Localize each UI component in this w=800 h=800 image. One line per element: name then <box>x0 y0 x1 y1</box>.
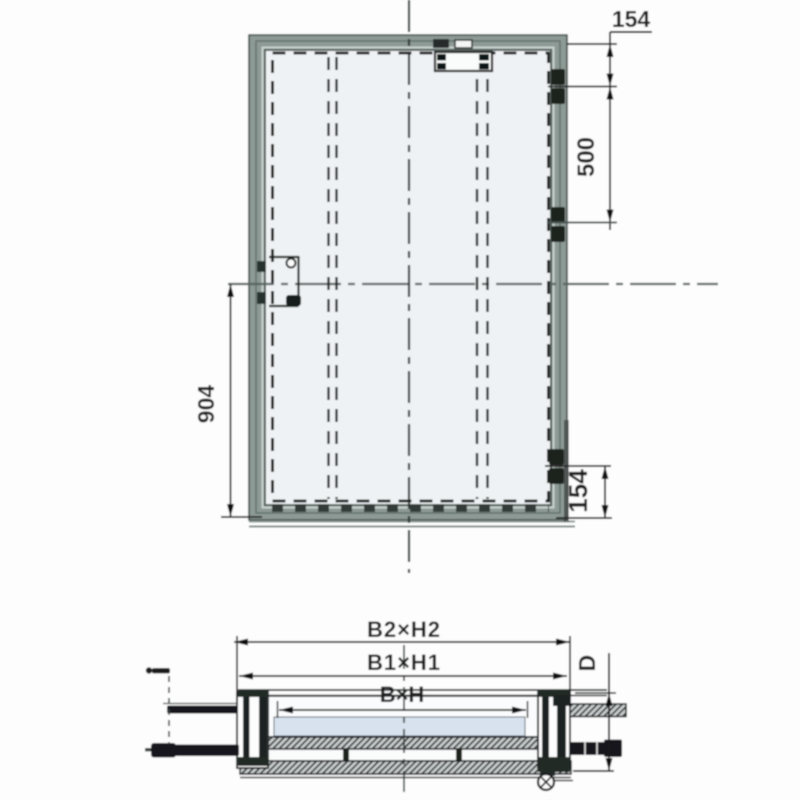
svg-text:154: 154 <box>612 6 651 32</box>
svg-text:B2×H2: B2×H2 <box>367 617 441 642</box>
svg-text:B1×H1: B1×H1 <box>367 650 441 675</box>
svg-text:B×H: B×H <box>380 682 425 707</box>
svg-text:500: 500 <box>573 137 600 177</box>
svg-text:D: D <box>574 655 600 672</box>
svg-text:904: 904 <box>193 385 219 424</box>
